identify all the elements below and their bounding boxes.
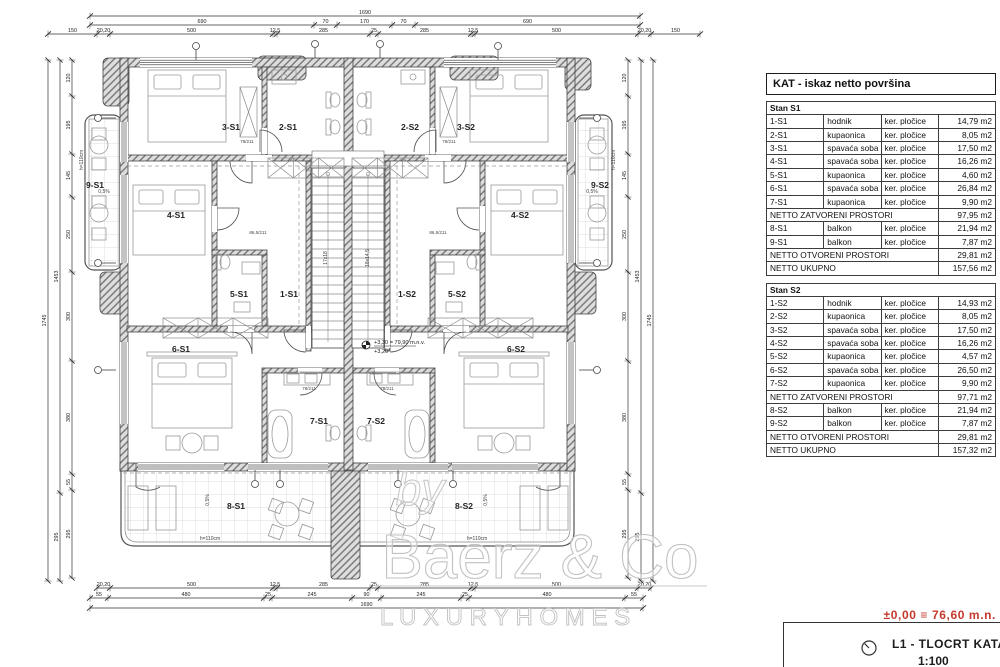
plan-note: 0,5% [98, 189, 110, 195]
dimension-label: 1453 [54, 271, 60, 283]
table-row: NETTO OTVORENI PROSTORI29,81 m2 [767, 430, 996, 443]
room-name: hodnik [824, 115, 881, 128]
dimension-label: 150 [68, 28, 77, 34]
dimension-label: 55 [96, 592, 102, 598]
dimension-label: 250 [66, 230, 72, 239]
plan-note: 78/211 [380, 386, 394, 391]
room-finish: ker. pločice [881, 310, 938, 323]
room-name: kupaonica [824, 195, 881, 208]
walls [120, 58, 575, 471]
room-label: 6-S1 [172, 344, 190, 354]
room-finish: ker. pločice [881, 128, 938, 141]
dimension-label: 25 [371, 28, 377, 34]
plan-note: 78/211 [442, 139, 456, 144]
room-name: balkon [824, 235, 881, 248]
dimension-label: 500 [187, 28, 196, 34]
room-name: balkon [824, 403, 881, 416]
room-code: 3-S2 [767, 323, 824, 336]
table-row: 9-S2balkonker. pločice7,87 m2 [767, 417, 996, 430]
room-finish: ker. pločice [881, 115, 938, 128]
room-code: 4-S1 [767, 155, 824, 168]
room-code: 7-S1 [767, 195, 824, 208]
room-code: 2-S1 [767, 128, 824, 141]
dimension-label: 250 [622, 230, 628, 239]
unit-area-table: Stan S11-S1hodnikker. pločice14,79 m22-S… [766, 101, 996, 276]
room-name: spavaća soba [824, 182, 881, 195]
subtotal-label: NETTO ZATVORENI PROSTORI [767, 390, 939, 403]
room-finish: ker. pločice [881, 363, 938, 376]
table-row: 6-S1spavaća sobaker. pločice26,84 m2 [767, 182, 996, 195]
total-area: 157,32 m2 [938, 443, 995, 456]
dimension-label: 480 [543, 592, 552, 598]
room-finish: ker. pločice [881, 403, 938, 416]
benchmark-note: ±0,00 ≡ 76,60 m.n. [760, 608, 996, 622]
room-label: 4-S1 [167, 210, 185, 220]
room-finish: ker. pločice [881, 155, 938, 168]
room-finish: ker. pločice [881, 323, 938, 336]
table-row: NETTO UKUPNO157,32 m2 [767, 443, 996, 456]
dimension-label: 170 [360, 19, 369, 25]
unit-title: Stan S1 [767, 102, 996, 115]
table-row: 5-S1kupaonicaker. pločice4,60 m2 [767, 168, 996, 181]
table-row: 6-S2spavaća sobaker. pločice26,50 m2 [767, 363, 996, 376]
room-label: 8-S2 [455, 501, 473, 511]
plan-note: 0,5% [586, 189, 598, 195]
subtotal-label: NETTO OTVORENI PROSTORI [767, 430, 939, 443]
dimension-label: 55 [631, 592, 637, 598]
table-row: 2-S2kupaonicaker. pločice8,05 m2 [767, 310, 996, 323]
room-code: 9-S2 [767, 417, 824, 430]
dimension-label: 300 [622, 312, 628, 321]
room-name: kupaonica [824, 168, 881, 181]
room-area: 4,60 m2 [938, 168, 995, 181]
plan-note: h=110cm [611, 150, 617, 170]
table-row: 5-S2kupaonicaker. pločice4,57 m2 [767, 350, 996, 363]
dimension-label: 295 [66, 530, 72, 539]
room-area: 9,90 m2 [938, 195, 995, 208]
dimension-label: 90 [364, 592, 370, 598]
dimension-label: 380 [66, 413, 72, 422]
dimension-label: 150 [671, 28, 680, 34]
dimension-label: 285 [319, 582, 328, 588]
room-code: 5-S1 [767, 168, 824, 181]
plan-note: 78/211 [240, 139, 254, 144]
table-header: KAT - iskaz netto površina [766, 73, 996, 95]
room-area: 7,87 m2 [938, 417, 995, 430]
dimension-label: 20,20 [97, 582, 111, 588]
dimension-label: 20,20 [638, 28, 652, 34]
table-row: 8-S2balkonker. pločice21,94 m2 [767, 403, 996, 416]
dimension-label: 12,5 [270, 582, 281, 588]
watermark-by: by [396, 463, 448, 515]
table-row: 1-S1hodnikker. pločice14,79 m2 [767, 115, 996, 128]
room-name: kupaonica [824, 350, 881, 363]
level-note: +3,20 [374, 349, 388, 355]
room-area: 16,26 m2 [938, 337, 995, 350]
table-row: NETTO ZATVORENI PROSTORI97,71 m2 [767, 390, 996, 403]
subtotal-area: 29,81 m2 [938, 430, 995, 443]
dimension-label: 690 [198, 19, 207, 25]
table-row: Stan S1 [767, 102, 996, 115]
room-area: 21,94 m2 [938, 222, 995, 235]
room-label: 3-S2 [457, 122, 475, 132]
dimension-label: 245 [417, 592, 426, 598]
room-name: hodnik [824, 297, 881, 310]
room-code: 2-S2 [767, 310, 824, 323]
room-code: 1-S2 [767, 297, 824, 310]
dimension-label: 70 [401, 19, 407, 25]
dimension-label: 12,5 [270, 28, 281, 34]
subtotal-label: NETTO ZATVORENI PROSTORI [767, 208, 939, 221]
room-finish: ker. pločice [881, 182, 938, 195]
table-row: NETTO ZATVORENI PROSTORI97,95 m2 [767, 208, 996, 221]
dimension-label: 500 [552, 28, 561, 34]
table-row: 9-S1balkonker. pločice7,87 m2 [767, 235, 996, 248]
room-area: 26,50 m2 [938, 363, 995, 376]
room-area: 8,05 m2 [938, 128, 995, 141]
dimension-label: 1745 [647, 315, 653, 327]
room-label: 8-S1 [227, 501, 245, 511]
room-code: 5-S2 [767, 350, 824, 363]
room-finish: ker. pločice [881, 222, 938, 235]
plan-note: h=110cm [200, 536, 220, 542]
subtotal-label: NETTO OTVORENI PROSTORI [767, 248, 939, 261]
room-code: 6-S2 [767, 363, 824, 376]
room-code: 4-S2 [767, 337, 824, 350]
room-label: 1-S1 [280, 289, 298, 299]
plan-note: 86,5/211 [249, 230, 267, 235]
table-row: NETTO UKUPNO157,56 m2 [767, 262, 996, 275]
dimension-label: 120 [622, 74, 628, 83]
table-row: NETTO OTVORENI PROSTORI29,81 m2 [767, 248, 996, 261]
sheet-scale: 1:100 [918, 654, 1000, 667]
room-name: spavaća soba [824, 363, 881, 376]
plan-note: 86,5/211 [429, 230, 447, 235]
total-area: 157,56 m2 [938, 262, 995, 275]
area-table-panel: KAT - iskaz netto površina Stan S11-S1ho… [766, 73, 996, 464]
room-label: 7-S1 [310, 416, 328, 426]
table-row: 7-S1kupaonicaker. pločice9,90 m2 [767, 195, 996, 208]
room-area: 17,50 m2 [938, 142, 995, 155]
dimension-label: 1453 [635, 271, 641, 283]
room-code: 8-S2 [767, 403, 824, 416]
dimension-label: 25 [462, 592, 468, 598]
room-area: 26,84 m2 [938, 182, 995, 195]
room-name: balkon [824, 417, 881, 430]
dimension-label: 145 [66, 171, 72, 180]
room-finish: ker. pločice [881, 195, 938, 208]
dimension-label: 500 [187, 582, 196, 588]
dimension-label: 145 [622, 171, 628, 180]
table-row: 3-S2spavaća sobaker. pločice17,50 m2 [767, 323, 996, 336]
room-name: kupaonica [824, 310, 881, 323]
level-note: +3,30 = 79,90 m.n.v. [374, 340, 425, 346]
room-area: 21,94 m2 [938, 403, 995, 416]
sheet-title: L1 - TLOCRT KATA [892, 637, 1000, 651]
room-area: 16,26 m2 [938, 155, 995, 168]
table-row: 2-S1kupaonicaker. pločice8,05 m2 [767, 128, 996, 141]
room-name: spavaća soba [824, 323, 881, 336]
dimension-label: 195 [622, 121, 628, 130]
dimension-label: 245 [308, 592, 317, 598]
room-finish: ker. pločice [881, 417, 938, 430]
dimension-label: 285 [319, 28, 328, 34]
unit-area-table: Stan S21-S2hodnikker. pločice14,93 m22-S… [766, 283, 996, 458]
table-row: 1-S2hodnikker. pločice14,93 m2 [767, 297, 996, 310]
room-name: spavaća soba [824, 142, 881, 155]
table-row: 4-S2spavaća sobaker. pločice16,26 m2 [767, 337, 996, 350]
room-code: 9-S1 [767, 235, 824, 248]
room-area: 17,50 m2 [938, 323, 995, 336]
north-arrow-icon [860, 639, 878, 657]
room-name: spavaća soba [824, 155, 881, 168]
floor-plan-drawing: 1690690701707069015020,2050012,528525285… [0, 0, 760, 667]
dimension-label: 300 [66, 312, 72, 321]
dimension-label: 120 [66, 74, 72, 83]
dimension-label: 55 [622, 479, 628, 485]
room-label: 7-S2 [367, 416, 385, 426]
table-row: Stan S2 [767, 283, 996, 296]
title-block: L1 - TLOCRT KATA 1:100 [783, 622, 1000, 667]
room-label: 2-S1 [279, 122, 297, 132]
dimension-label: 12,5 [468, 28, 479, 34]
room-area: 14,79 m2 [938, 115, 995, 128]
room-area: 9,90 m2 [938, 377, 995, 390]
room-name: spavaća soba [824, 337, 881, 350]
room-area: 8,05 m2 [938, 310, 995, 323]
dimension-label: 285 [420, 28, 429, 34]
dimension-label: 1690 [359, 10, 371, 16]
total-label: NETTO UKUPNO [767, 443, 939, 456]
dimension-label: 55 [66, 479, 72, 485]
room-label: 2-S2 [401, 122, 419, 132]
room-finish: ker. pločice [881, 235, 938, 248]
subtotal-area: 97,95 m2 [938, 208, 995, 221]
room-finish: ker. pločice [881, 297, 938, 310]
room-label: 5-S1 [230, 289, 248, 299]
room-area: 14,93 m2 [938, 297, 995, 310]
room-label: 1-S2 [398, 289, 416, 299]
dimension-label: 195 [66, 121, 72, 130]
dimension-label: 480 [182, 592, 191, 598]
plan-note: 18x14,5 [365, 249, 371, 267]
room-area: 7,87 m2 [938, 235, 995, 248]
room-label: 3-S1 [222, 122, 240, 132]
table-row: 4-S1spavaća sobaker. pločice16,26 m2 [767, 155, 996, 168]
room-label: 4-S2 [511, 210, 529, 220]
table-row: 8-S1balkonker. pločice21,94 m2 [767, 222, 996, 235]
room-label: 5-S2 [448, 289, 466, 299]
dimension-label: 380 [622, 413, 628, 422]
table-row: 7-S2kupaonicaker. pločice9,90 m2 [767, 377, 996, 390]
dimension-label: 1690 [361, 602, 373, 608]
plan-note: 78/211 [302, 386, 316, 391]
unit-title: Stan S2 [767, 283, 996, 296]
room-name: balkon [824, 222, 881, 235]
room-area: 4,57 m2 [938, 350, 995, 363]
room-name: kupaonica [824, 128, 881, 141]
dimension-label: 70 [323, 19, 329, 25]
dimension-label: 25 [265, 592, 271, 598]
subtotal-area: 97,71 m2 [938, 390, 995, 403]
room-code: 1-S1 [767, 115, 824, 128]
plan-note: 0,5% [205, 494, 211, 506]
room-code: 7-S2 [767, 377, 824, 390]
total-label: NETTO UKUPNO [767, 262, 939, 275]
room-finish: ker. pločice [881, 377, 938, 390]
dimension-label: 690 [523, 19, 532, 25]
watermark-tagline: L U X U R Y H O M E S [380, 604, 630, 631]
dimension-label: 295 [54, 533, 60, 542]
subtotal-area: 29,81 m2 [938, 248, 995, 261]
plan-note: h=110cm [79, 150, 85, 170]
room-name: kupaonica [824, 377, 881, 390]
room-code: 3-S1 [767, 142, 824, 155]
watermark-name: Baerz & Co [381, 523, 698, 592]
room-finish: ker. pločice [881, 168, 938, 181]
dimension-label: 1745 [42, 315, 48, 327]
room-finish: ker. pločice [881, 142, 938, 155]
plan-note: 0,5% [483, 494, 489, 506]
plan-note: 17x18 [323, 251, 329, 265]
room-finish: ker. pločice [881, 350, 938, 363]
floorplan-sheet: 1690690701707069015020,2050012,528525285… [0, 0, 1000, 667]
room-code: 8-S1 [767, 222, 824, 235]
table-row: 3-S1spavaća sobaker. pločice17,50 m2 [767, 142, 996, 155]
room-finish: ker. pločice [881, 337, 938, 350]
dimension-label: 20,20 [97, 28, 111, 34]
table-stan-s1: Stan S11-S1hodnikker. pločice14,79 m22-S… [766, 101, 996, 276]
table-stan-s2: Stan S21-S2hodnikker. pločice14,93 m22-S… [766, 283, 996, 458]
room-label: 6-S2 [507, 344, 525, 354]
room-code: 6-S1 [767, 182, 824, 195]
dimension-label: 25 [371, 582, 377, 588]
